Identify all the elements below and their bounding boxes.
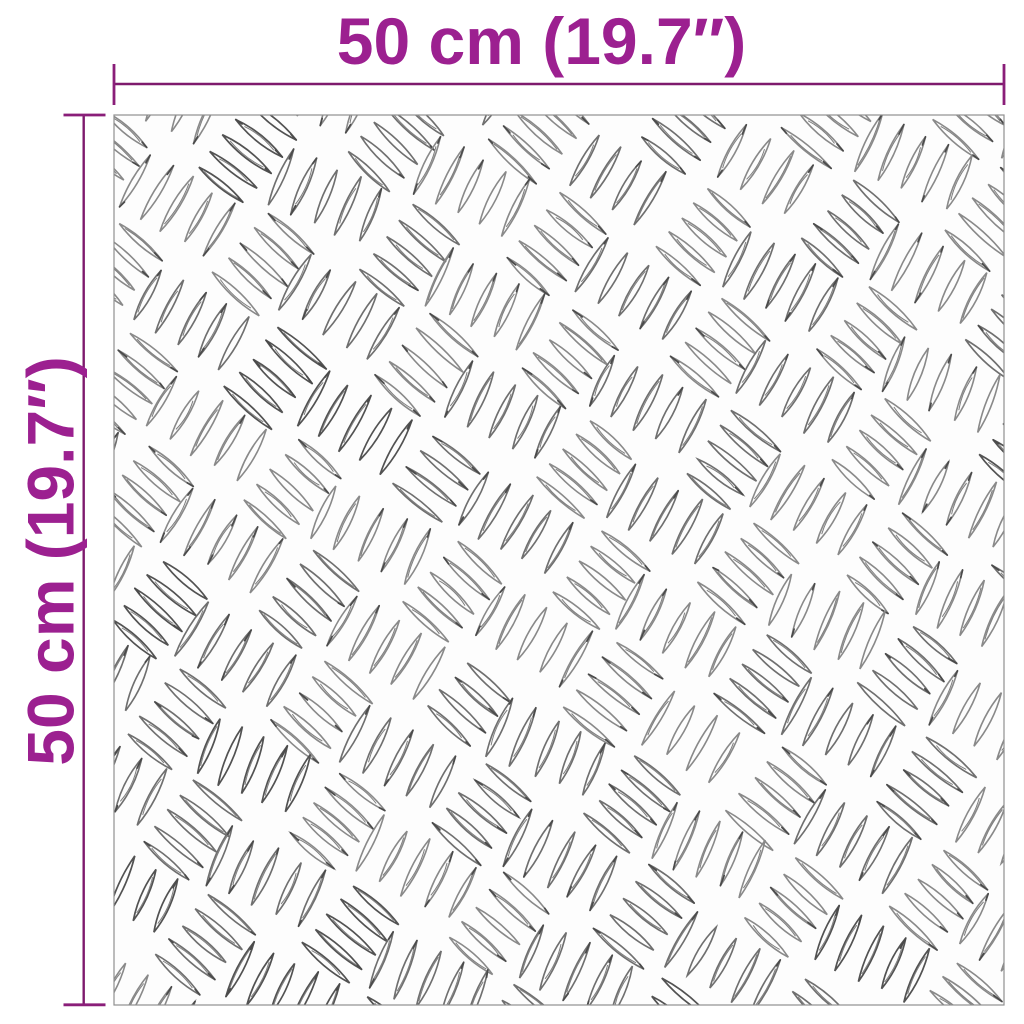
svg-text:50 cm (19.7″): 50 cm (19.7″) (14, 356, 88, 766)
svg-text:50 cm (19.7″): 50 cm (19.7″) (337, 4, 747, 78)
